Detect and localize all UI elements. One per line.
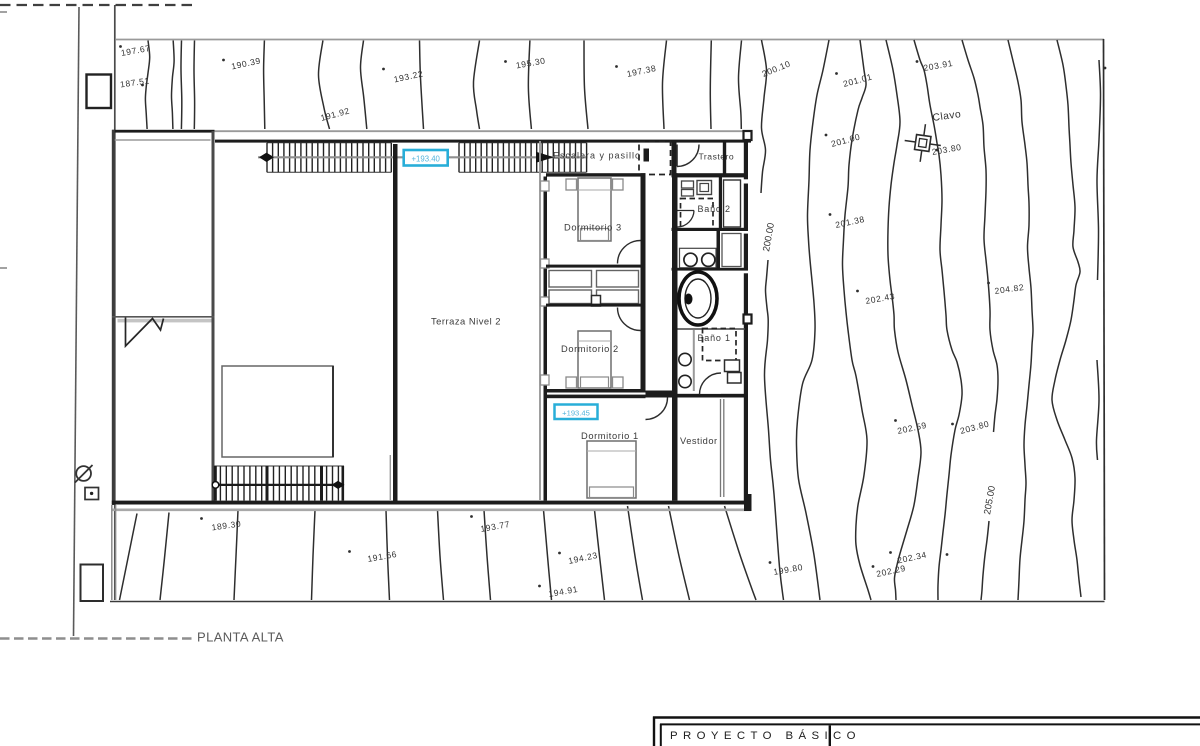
svg-text:Dormitorio 1: Dormitorio 1 <box>581 431 639 441</box>
svg-text:PLANTA ALTA: PLANTA ALTA <box>197 630 284 645</box>
svg-text:Escalera y pasillo: Escalera y pasillo <box>553 151 641 161</box>
svg-text:Vestidor: Vestidor <box>680 436 718 446</box>
svg-text:+193.45: +193.45 <box>562 408 590 417</box>
svg-text:+193.40: +193.40 <box>411 155 440 164</box>
svg-text:Baño 1: Baño 1 <box>698 333 731 343</box>
svg-text:Dormitorio 2: Dormitorio 2 <box>561 344 619 354</box>
svg-text:Terraza Nivel 2: Terraza Nivel 2 <box>431 316 501 327</box>
svg-text:Trastero: Trastero <box>699 152 735 162</box>
svg-text:PROYECTO BÁSICO: PROYECTO BÁSICO <box>670 729 861 742</box>
svg-text:Dormitorio 3: Dormitorio 3 <box>564 223 622 233</box>
svg-text:Baño 2: Baño 2 <box>698 204 731 214</box>
